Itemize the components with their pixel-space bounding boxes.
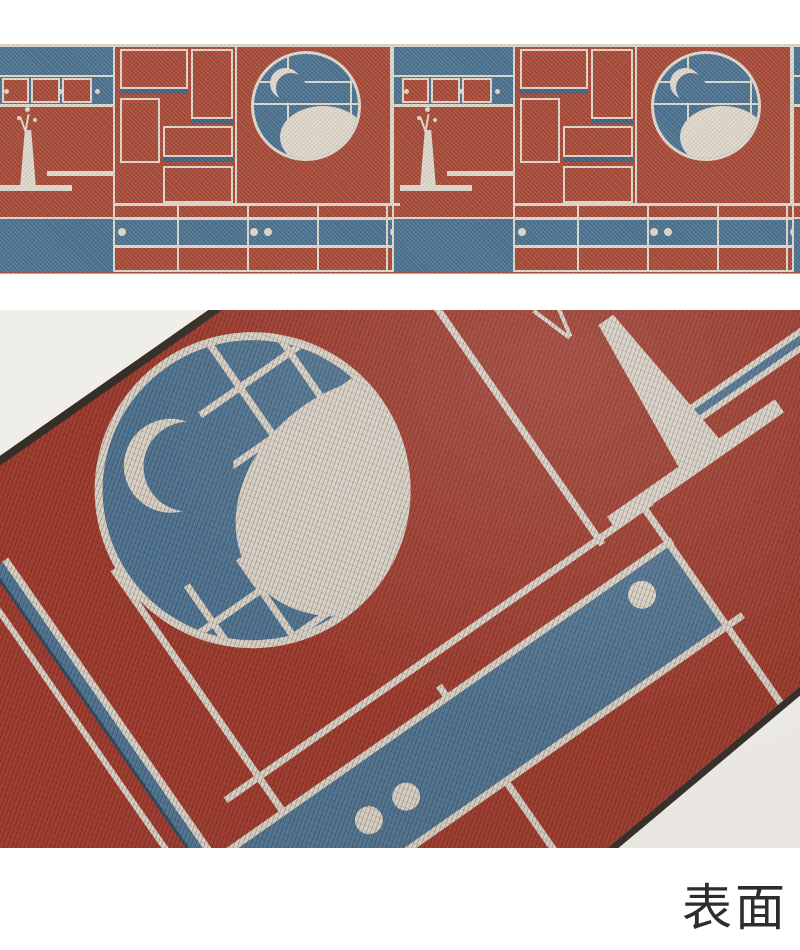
panel-divider xyxy=(635,45,637,205)
cabinet-door xyxy=(62,78,92,103)
door-handle-dot xyxy=(95,89,100,94)
bottom-blue-panel xyxy=(0,219,113,272)
obi-full-pattern-strip-photo xyxy=(0,44,800,274)
shelf-bar xyxy=(163,157,233,162)
shelf xyxy=(0,185,72,191)
door-handle-dot xyxy=(650,228,658,236)
door-divider xyxy=(647,203,649,272)
flower-vase xyxy=(420,130,436,188)
sky-panel xyxy=(0,47,113,75)
door-divider xyxy=(317,203,319,272)
shelf-rect xyxy=(520,49,588,89)
lattice-line xyxy=(254,103,358,105)
band-top-line xyxy=(515,203,800,206)
moon-window-circle xyxy=(251,51,361,161)
shelf-rect xyxy=(191,49,233,119)
door-divider xyxy=(717,203,719,272)
shelf-pole xyxy=(447,171,513,176)
door-divider xyxy=(386,203,388,272)
plum-blossom xyxy=(433,118,437,122)
door-handle-dot xyxy=(4,89,9,94)
bottom-blue-panel xyxy=(400,219,513,272)
door-divider xyxy=(177,203,179,272)
lattice-line xyxy=(654,103,758,105)
door-divider xyxy=(247,203,249,272)
shelf xyxy=(400,185,472,191)
shelf-rect xyxy=(563,166,633,203)
cabinet-bottom-line xyxy=(0,104,113,107)
panel-divider xyxy=(235,45,237,205)
door-handle-dot xyxy=(264,228,272,236)
shelf-rect xyxy=(163,126,233,157)
moon-hill xyxy=(680,106,761,161)
plum-blossom xyxy=(425,107,430,112)
door-handle-dot xyxy=(664,228,672,236)
bottom-blue-sliver xyxy=(794,219,800,272)
sky-panel-sliver xyxy=(794,47,800,75)
door-handle-dot xyxy=(58,89,63,94)
cabinet-line-sliver xyxy=(794,104,800,107)
band-edge xyxy=(115,245,400,248)
crescent-moon-shadow xyxy=(126,404,251,529)
door-handle-dot xyxy=(250,228,258,236)
cabinet-door xyxy=(31,78,60,103)
shelf-rect xyxy=(520,98,560,163)
door-handle-dot xyxy=(118,228,126,236)
shelf-bar xyxy=(563,157,633,162)
pattern-repeat xyxy=(400,45,800,272)
cabinet-door xyxy=(431,78,460,103)
plum-blossom xyxy=(33,118,37,122)
shelf-rect xyxy=(591,49,633,119)
crescent-moon-shadow xyxy=(276,73,306,103)
flower-vase xyxy=(20,130,36,188)
obi-weave-closeup-photo xyxy=(0,310,800,848)
door-handle-dot xyxy=(458,89,463,94)
shelf-rect xyxy=(120,98,160,163)
cabinet-sliver xyxy=(794,77,800,104)
band-edge xyxy=(515,245,800,248)
pattern-repeat xyxy=(0,45,400,272)
shelf-rect xyxy=(163,166,233,203)
door-handle-dot xyxy=(495,89,500,94)
shelf-bar xyxy=(120,89,188,94)
door-divider xyxy=(786,203,788,272)
shelf-rect xyxy=(563,126,633,157)
flower-vase xyxy=(585,310,721,469)
moon-window-circle xyxy=(33,310,473,710)
shelf-bar xyxy=(591,119,633,124)
shelf-pole xyxy=(47,171,113,176)
lattice-line xyxy=(203,338,280,444)
sky-panel xyxy=(400,47,513,75)
plum-blossom xyxy=(25,107,30,112)
band-top-line xyxy=(115,203,400,206)
moon-window-circle xyxy=(651,51,761,161)
shelf-rect xyxy=(120,49,188,89)
moon-hill xyxy=(280,106,361,161)
door-handle-dot xyxy=(518,228,526,236)
door-handle-dot xyxy=(404,89,409,94)
crescent-moon-shadow xyxy=(676,73,706,103)
cabinet-door xyxy=(462,78,492,103)
cabinet-line-sliver xyxy=(794,75,800,77)
cabinet-bottom-line xyxy=(400,104,513,107)
caption-front-side: 表面 xyxy=(682,868,788,940)
shelf-bar xyxy=(520,89,588,94)
fabric xyxy=(0,310,800,848)
door-divider xyxy=(577,203,579,272)
shelf-bar xyxy=(191,119,233,124)
